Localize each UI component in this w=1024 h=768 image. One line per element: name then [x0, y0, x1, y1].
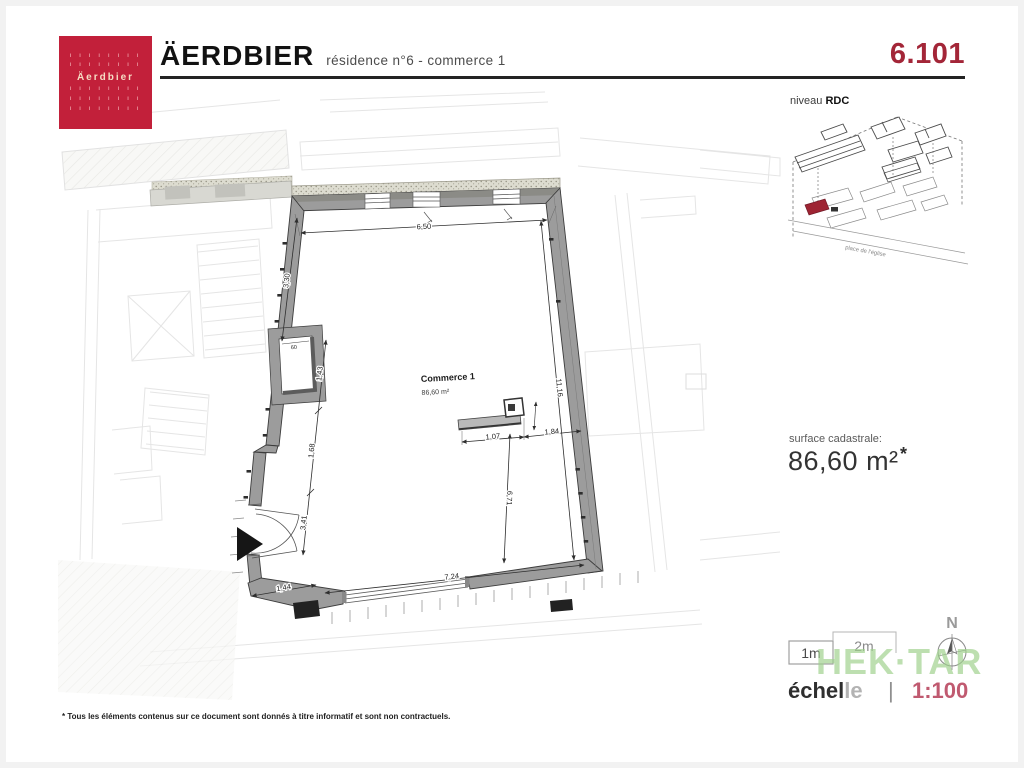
- street-lines: [788, 220, 968, 264]
- surface-asterisk: *: [900, 444, 907, 465]
- dim-left-mid: 1,43: [314, 366, 324, 381]
- dim-counter-right: 1,84: [544, 426, 559, 436]
- floor-plan-sheet: 60: [0, 0, 1024, 768]
- logo-name: Äerdbier: [77, 71, 134, 84]
- scale-word-dark: échel: [788, 678, 844, 703]
- level-value: RDC: [825, 95, 849, 107]
- disclaimer-text: * Tous les éléments contenus sur ce docu…: [62, 712, 450, 721]
- logo-dots: ı ı ı ı ı ı ı ı: [69, 95, 141, 104]
- header-rule: [160, 76, 965, 79]
- dim-center: 6,71: [505, 491, 515, 506]
- page-title: ÄERDBIER: [160, 40, 314, 72]
- level-label: niveau RDC: [790, 95, 849, 107]
- site-buildings: [795, 117, 952, 182]
- site-locator-map: place de l'église: [785, 110, 970, 272]
- logo-dots: ı ı ı ı ı ı ı ı: [69, 105, 141, 114]
- dim-left-door: 3,41: [298, 515, 308, 530]
- header: ÄERDBIER résidence n°6 - commerce 1: [160, 40, 506, 72]
- surface-label: surface cadastrale:: [789, 433, 882, 445]
- unit-entrance-mark: [831, 207, 838, 212]
- page-subtitle: résidence n°6 - commerce 1: [326, 53, 505, 68]
- dim-counter-left: 1,07: [485, 431, 500, 441]
- surface-value: 86,60 m²: [788, 446, 899, 477]
- dim-niche: 60: [291, 345, 298, 352]
- plan-number: 6.101: [890, 38, 965, 71]
- duct-niche: 60: [268, 325, 326, 405]
- highlighted-unit: [805, 199, 829, 215]
- scale-word-light: le: [844, 678, 862, 703]
- dim-left-lower: 1,68: [306, 443, 316, 458]
- level-word: niveau: [790, 95, 822, 107]
- agency-watermark: HEK·TAR: [816, 641, 982, 683]
- company-logo: ı ı ı ı ı ı ı ı ı ı ı ı ı ı ı ı Äerdbier…: [59, 36, 152, 129]
- logo-dots: ı ı ı ı ı ı ı ı: [69, 61, 141, 70]
- logo-dots: ı ı ı ı ı ı ı ı: [69, 52, 141, 61]
- dim-right: 11,16: [554, 378, 565, 397]
- room-area: 86,60 m²: [421, 389, 450, 397]
- site-footprints: [812, 177, 948, 228]
- dim-left-upper: 3,30: [281, 273, 292, 289]
- dim-bottom: 7,24: [444, 571, 459, 582]
- dim-top: 6,50: [416, 222, 431, 232]
- north-letter: N: [946, 615, 958, 632]
- scale-separator: |: [888, 678, 894, 704]
- scale-value: 1:100: [912, 678, 968, 704]
- logo-dots: ı ı ı ı ı ı ı ı: [69, 85, 141, 94]
- scale-word: échelle: [788, 678, 863, 704]
